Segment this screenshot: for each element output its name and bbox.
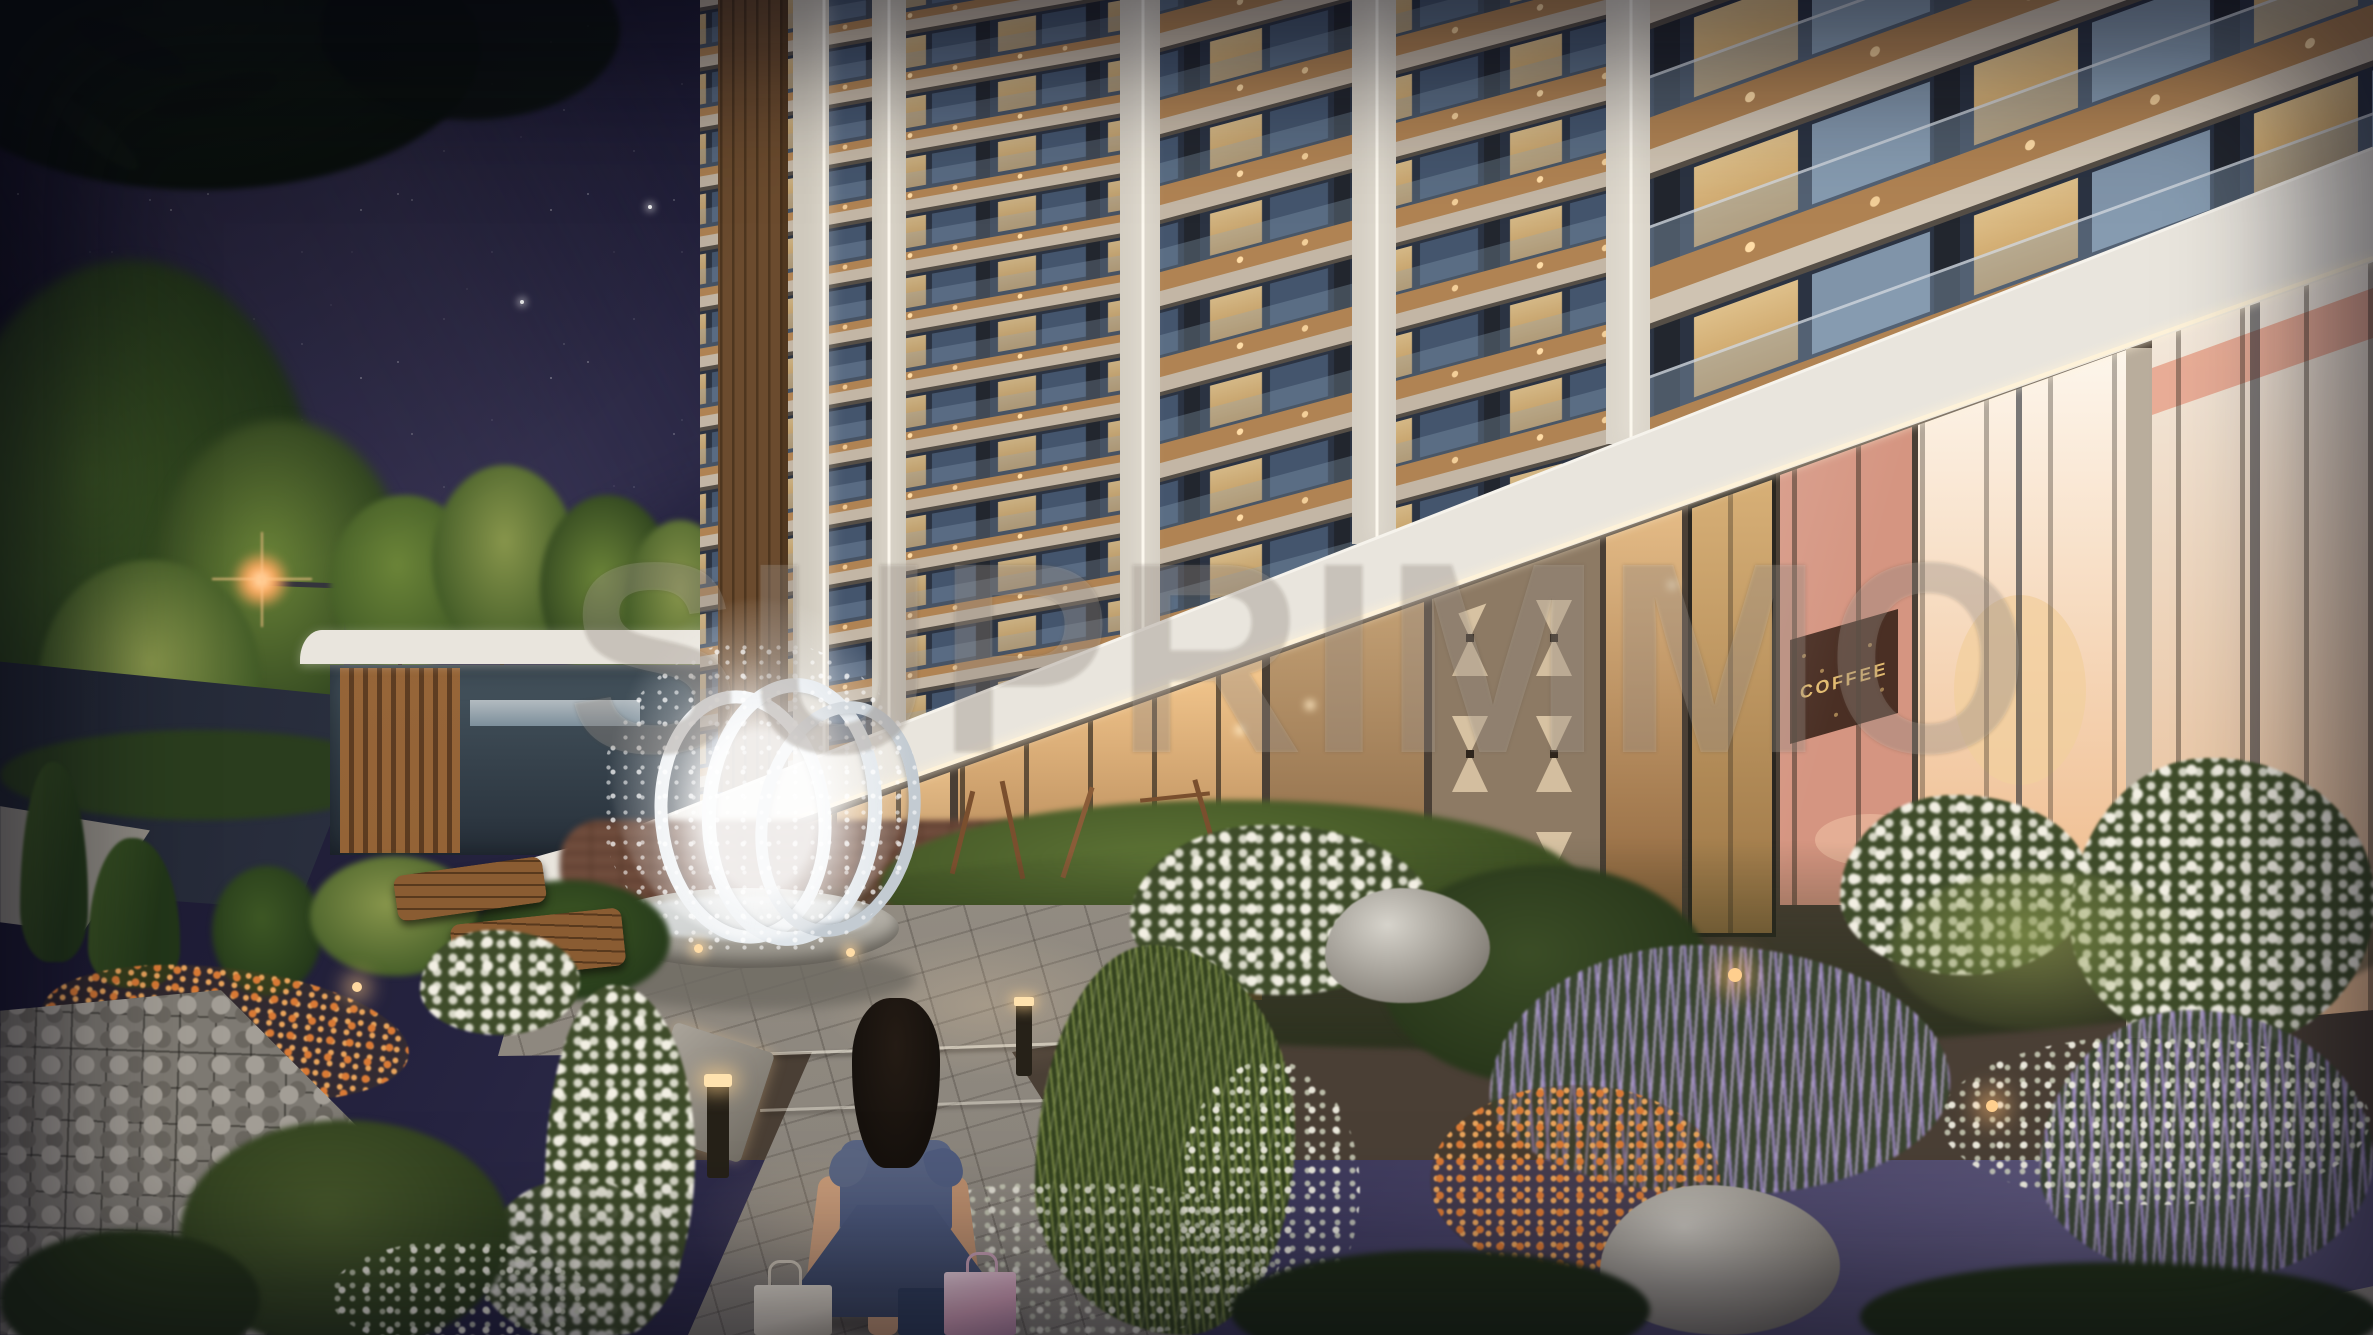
shopping-bag-pink (944, 1272, 1016, 1335)
fountain-rim-light (846, 948, 855, 957)
daisy-patch-right (1940, 1035, 2370, 1205)
garden-spotlight (1986, 1100, 1998, 1112)
garden-spotlight (1728, 968, 1742, 982)
shopping-bag-white (754, 1285, 832, 1335)
fountain-rim-light (694, 944, 703, 953)
woman-hair (852, 998, 940, 1168)
garden-spotlight (352, 982, 362, 992)
pedestrian-woman (740, 980, 1040, 1335)
night-courtyard-render: COFFEE (0, 0, 2373, 1335)
watermark: SUPRIMMO (567, 508, 1853, 808)
warm-lit-shrub (1890, 870, 2190, 1030)
bollard-light (707, 1078, 729, 1178)
white-flower-cluster (420, 930, 580, 1035)
bollard-light-cap (704, 1074, 732, 1087)
